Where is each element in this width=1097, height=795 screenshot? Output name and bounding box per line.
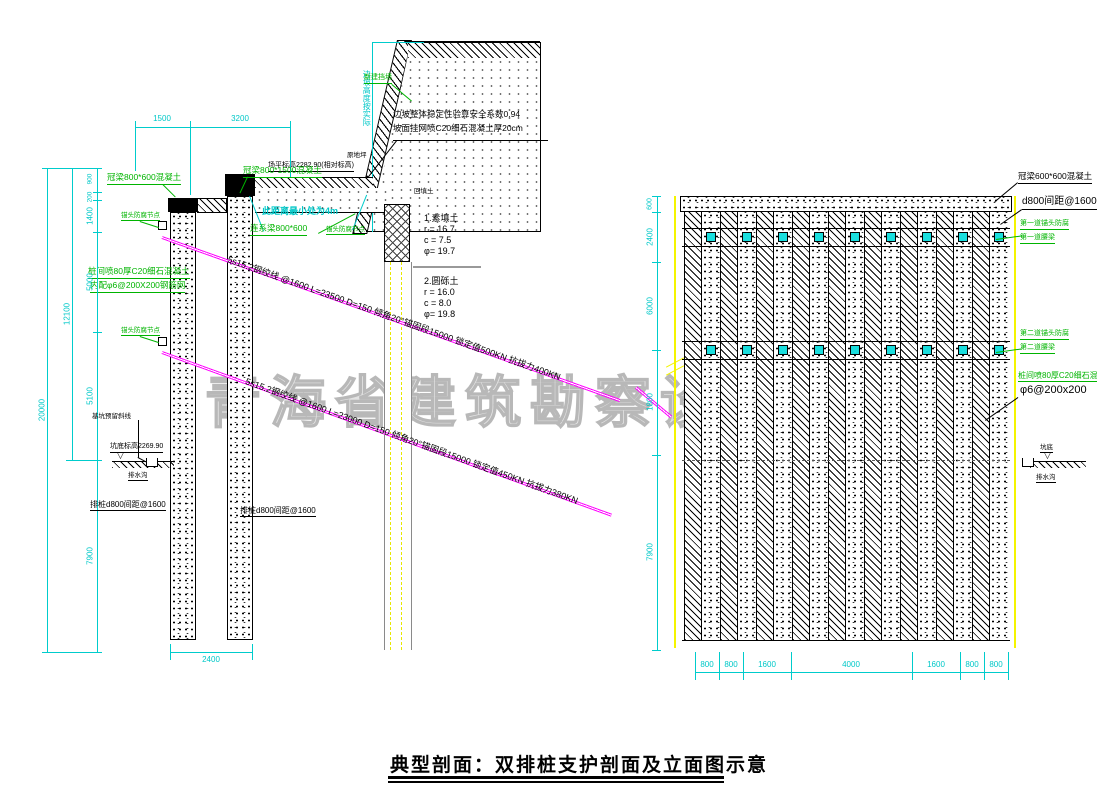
dim-mid-tie <box>66 460 102 461</box>
anchor-head-small-label: 锚头防腐节点 <box>326 226 365 235</box>
elev-yellow-left <box>674 196 676 648</box>
soil-divider <box>413 266 481 268</box>
soil2-c: c = 8.0 <box>424 298 451 308</box>
soil2-name: 2.圆砾土 <box>424 276 459 286</box>
elev-pile <box>864 212 882 640</box>
elev-pile <box>756 212 774 640</box>
slope-dim-topline <box>372 42 424 43</box>
elev-dim-600: 600 <box>647 198 654 210</box>
dim-12100: 12100 <box>63 303 72 325</box>
anchor-plate <box>778 345 788 355</box>
shotcrete-label-1: 桩间喷80厚C20细石混凝土 <box>88 267 190 279</box>
soil2-phi: φ= 19.8 <box>424 309 455 319</box>
title-underline-2 <box>388 781 724 783</box>
front-pile-label: 排桩d800间距@1600 <box>240 506 316 517</box>
waler1-top <box>682 228 1010 229</box>
anchor-plate <box>958 232 968 242</box>
soil2-r: r = 16.0 <box>424 287 455 297</box>
top-dim-ext1 <box>135 121 136 171</box>
anchor-plate <box>886 345 896 355</box>
level-mark: ▽ <box>117 450 124 460</box>
slope-right-border <box>540 42 541 232</box>
elev-pile-field <box>682 212 1010 641</box>
soil1-c: c = 7.5 <box>424 235 451 245</box>
anchor-plate <box>814 345 824 355</box>
anchor-plate <box>742 232 752 242</box>
elev-infill <box>882 212 900 640</box>
dim-line-12100 <box>72 168 73 460</box>
anchor-plate <box>850 232 860 242</box>
anchor-head-2-leader <box>140 336 159 343</box>
elev-yellow-right <box>1014 196 1016 648</box>
elev-dim-1800: 1800 <box>646 393 655 411</box>
rear-crown-beam <box>168 198 198 212</box>
elev-drain-label: 排水沟 <box>1036 474 1056 483</box>
elev-infill <box>738 212 756 640</box>
anchor-plate <box>886 232 896 242</box>
elev-infill <box>846 212 864 640</box>
bdim-1600b: 1600 <box>927 660 945 669</box>
dim-2400-t2 <box>252 644 253 660</box>
anchor-head-1-label: 锚头防腐节点 <box>121 212 160 221</box>
backfill-label: 回填土 <box>414 188 434 195</box>
pit-ground-hatch <box>112 461 174 468</box>
slope-top-hatch <box>408 42 540 58</box>
dim-1500: 1500 <box>153 114 171 123</box>
anchor-plate <box>706 232 716 242</box>
elev-pile-label: d800间距@1600 <box>1022 196 1097 210</box>
min-distance-note: 此距离最小处为4m <box>262 206 338 216</box>
rear-pile-label: 排桩d800间距@1600 <box>90 500 166 511</box>
bdim-4000: 4000 <box>842 660 860 669</box>
elev-cap-beam <box>680 196 1012 212</box>
elev-shotcrete-label1: 桩间喷80厚C20细石混凝土 <box>1018 371 1097 382</box>
crosshatch-block <box>384 204 410 262</box>
elev-infill <box>810 212 828 640</box>
reserve-line-label: 基坑预留斜线 <box>92 413 131 420</box>
elev-dim-6000: 6000 <box>646 297 655 315</box>
dim-20000: 20000 <box>38 399 47 421</box>
excavation-level-line <box>682 460 1010 461</box>
note-underline <box>393 140 548 141</box>
tie-beam-label: 连系梁800*600 <box>250 224 307 236</box>
drawing-title: 典型剖面：双排桩支护剖面及立面图示意 <box>390 750 768 777</box>
elev-pile <box>900 212 918 640</box>
dim-200: 200 <box>87 192 94 203</box>
soil1-name: 1.素填土 <box>424 213 459 223</box>
anchor-plate <box>742 345 752 355</box>
crown-front-label: 冠梁800*1500混凝土 <box>243 166 322 178</box>
anchor-plate <box>850 345 860 355</box>
row2-waler-label: 第二道腰梁 <box>1020 344 1055 354</box>
elev-drain-step <box>1022 458 1034 467</box>
dim-line-20000 <box>47 168 48 652</box>
elev-infill <box>702 212 720 640</box>
crown-rear-leader <box>162 184 175 197</box>
top-dim-line <box>135 127 290 128</box>
soil1-r: r = 16.7 <box>424 224 455 234</box>
dim-7900: 7900 <box>86 547 95 565</box>
anchor-plate <box>706 345 716 355</box>
waler2-top <box>682 341 1010 342</box>
elev-infill <box>990 212 1008 640</box>
top-dim-ext2 <box>190 121 191 195</box>
soil1-phi: φ= 19.7 <box>424 246 455 256</box>
dim-top-tie <box>42 168 102 169</box>
bdim-800a: 800 <box>700 660 713 669</box>
anchor-plate <box>814 232 824 242</box>
row2-head-label: 第二道锚头防腐 <box>1020 330 1069 340</box>
anchor-head-1-leader <box>140 221 159 228</box>
shotcrete-note: 坡面挂网喷C20细石混凝土厚20cm <box>393 124 523 134</box>
elev-shotcrete-label2: φ6@200x200 <box>1020 384 1087 397</box>
row1-waler-label: 第一道腰梁 <box>1020 234 1055 244</box>
elev-infill <box>774 212 792 640</box>
anchor-plate <box>958 345 968 355</box>
dim-2400: 2400 <box>202 655 220 664</box>
dim-2400-line <box>170 652 252 653</box>
elev-crown-label: 冠梁600*600混凝土 <box>1018 172 1092 184</box>
anchor-head-2-label: 锚头防腐节点 <box>121 327 160 336</box>
anchor-head-2 <box>158 337 167 346</box>
bdim-800c: 800 <box>965 660 978 669</box>
elev-pile <box>972 212 990 640</box>
tie-beam-hatch <box>197 198 227 213</box>
row1-head-label: 第一道锚头防腐 <box>1020 220 1069 230</box>
waler1-bottom <box>682 246 1010 247</box>
elev-infill <box>918 212 936 640</box>
waler2-bottom <box>682 359 1010 360</box>
drain-step <box>146 458 158 467</box>
elev-pile <box>792 212 810 640</box>
anchor-plate <box>778 232 788 242</box>
dim-bottom-tie <box>42 652 102 653</box>
elev-dim-2400: 2400 <box>646 228 655 246</box>
elev-infill <box>954 212 972 640</box>
dim-3200: 3200 <box>231 114 249 123</box>
dim-2400-t1 <box>170 644 171 660</box>
elev-pile <box>936 212 954 640</box>
drain-label: 排水沟 <box>128 472 148 481</box>
crown-rear-label: 冠梁800*600混凝土 <box>107 173 181 185</box>
elev-dim-line <box>657 196 658 651</box>
dim-900: 900 <box>87 174 94 185</box>
stability-note: 边坡整体稳定性验算安全系数0.94 <box>393 110 520 120</box>
elev-bottom-dim-line <box>695 672 1008 673</box>
elev-pile <box>720 212 738 640</box>
dim-1400: 1400 <box>86 207 95 225</box>
bdim-800b: 800 <box>724 660 737 669</box>
elev-dim-7900: 7900 <box>646 543 655 561</box>
bdim-800d: 800 <box>989 660 1002 669</box>
dim-5100: 5100 <box>86 387 95 405</box>
ground-label: 原地坪 <box>347 152 367 159</box>
anchor-plate <box>922 232 932 242</box>
dim-5000: 5000 <box>86 273 95 291</box>
dim-chain-line <box>97 168 98 652</box>
cad-drawing-canvas: 青海省建筑勘察设计研究院 边坡高度按实际 新建挡墙 回填土 边坡整体稳定性验算安… <box>0 0 1097 795</box>
new-wall-label: 新建挡墙 <box>364 74 392 84</box>
slope-top-line <box>405 41 540 42</box>
elev-pile <box>828 212 846 640</box>
elev-pile <box>684 212 702 640</box>
title-underline-1 <box>388 776 724 779</box>
bdim-1600a: 1600 <box>758 660 776 669</box>
anchor-head-1 <box>158 221 167 230</box>
shotcrete-label-2: 内配φ6@200X200钢筋网 <box>90 281 185 293</box>
anchor-plate <box>922 345 932 355</box>
elev-ground-hatch <box>1030 461 1086 468</box>
elev-level-mark: ▽ <box>1044 450 1051 460</box>
